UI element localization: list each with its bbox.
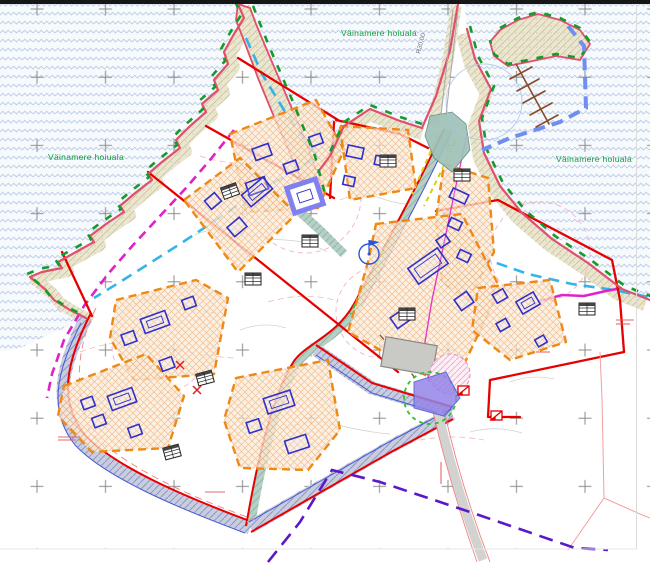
- coordinate-grid: [0, 4, 650, 549]
- protected-area-label-north: Väinamere hoiuala: [341, 28, 417, 38]
- special-building: [287, 179, 324, 213]
- window-top-edge: [0, 0, 650, 4]
- gate-symbol-2: [491, 411, 502, 420]
- gate-symbol-1: [458, 386, 469, 395]
- detailed-plan-map: Väinamere hoiuala Väinamere hoiuala Väin…: [0, 0, 650, 563]
- plan-map-viewport: Väinamere hoiuala Väinamere hoiuala Väin…: [0, 0, 650, 563]
- protected-area-label-east: Väinamere hoiuala: [556, 154, 632, 164]
- protected-area-label-west: Väinamere hoiuala: [48, 152, 124, 162]
